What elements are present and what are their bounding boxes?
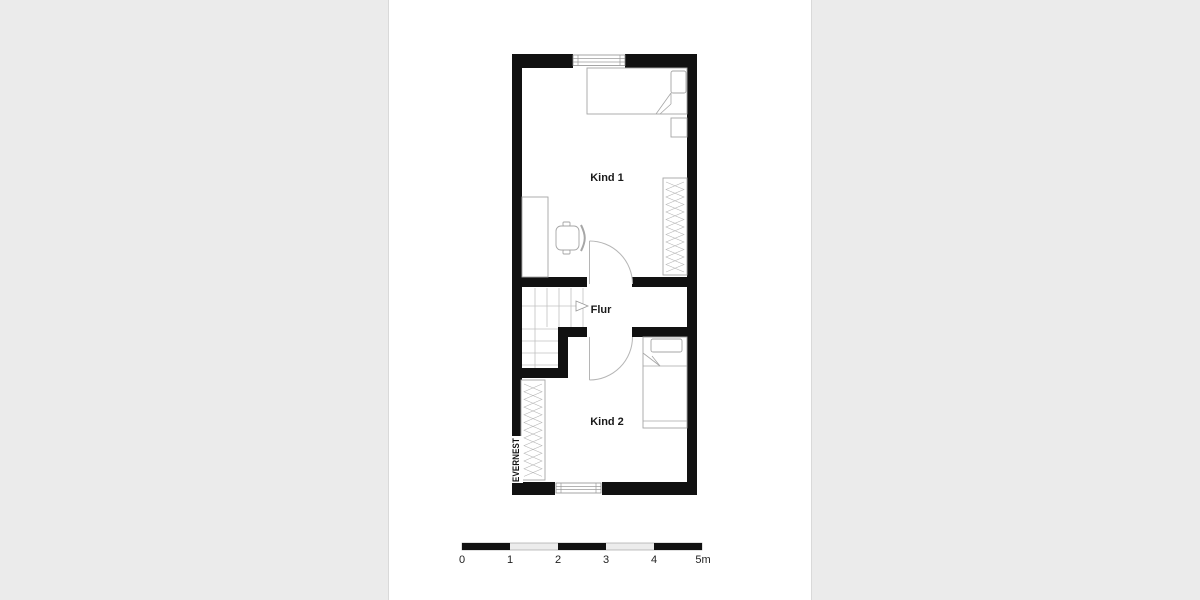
scale-bar: 0 1 2 3 4 5m [459,543,711,566]
scale-tick-5m: 5m [695,554,710,566]
kind2-pillow [651,339,682,352]
scale-tick-4: 4 [651,554,657,566]
wall-left-lower [512,481,522,495]
wall-flur-kind2-right [632,327,697,337]
scale-tick-3: 3 [603,554,609,566]
room-label-kind2: Kind 2 [590,416,624,428]
kind1-wardrobe [663,178,687,275]
kind1-chair-backrest [581,225,585,251]
watermark-group: EVERNEST [509,436,523,483]
wall-stair-bottom [512,368,560,378]
scale-bar-segment [558,543,606,550]
screenshot-canvas: Kind 1 Flur Kind 2 EVERNEST 0 1 2 3 4 5m [0,0,1200,600]
room-label-flur: Flur [591,304,612,316]
watermark-text: EVERNEST [511,438,522,482]
wall-right [687,54,697,495]
window-bottom-frame [556,483,601,493]
kind2-door-swing [590,337,633,380]
kind2-door [590,337,633,380]
room-label-kind1: Kind 1 [590,172,624,184]
kind1-chair-armrest [563,250,570,254]
floorplan-drawing: Kind 1 Flur Kind 2 EVERNEST 0 1 2 3 4 5m [0,0,1200,600]
kind1-door [590,241,633,284]
kind1-chair [556,222,585,254]
kind2-wardrobe [521,380,545,480]
kind1-chair-armrest [563,222,570,226]
window-bottom [555,482,602,495]
kind1-door-swing [590,241,633,284]
wall-top-right [625,54,697,68]
window-top [573,54,625,68]
stair-lower-flight-risers [522,329,558,365]
kind1-nightstand [671,118,687,137]
kind1-desk [522,197,548,277]
kind2-furniture [521,337,687,480]
scale-tick-1: 1 [507,554,513,566]
kind1-pillow [671,71,686,93]
stair-direction-arrow [576,301,588,311]
scale-tick-0: 0 [459,554,465,566]
scale-bar-segment [462,543,510,550]
kind1-chair-seat [556,226,579,250]
scale-tick-2: 2 [555,554,561,566]
wall-left-upper [512,54,522,438]
wall-bottom-right [602,482,697,495]
wall-kind1-flur-right [632,277,697,287]
window-top-frame [573,55,625,66]
wall-kind1-flur-left [512,277,587,287]
scale-bar-segment [654,543,702,550]
